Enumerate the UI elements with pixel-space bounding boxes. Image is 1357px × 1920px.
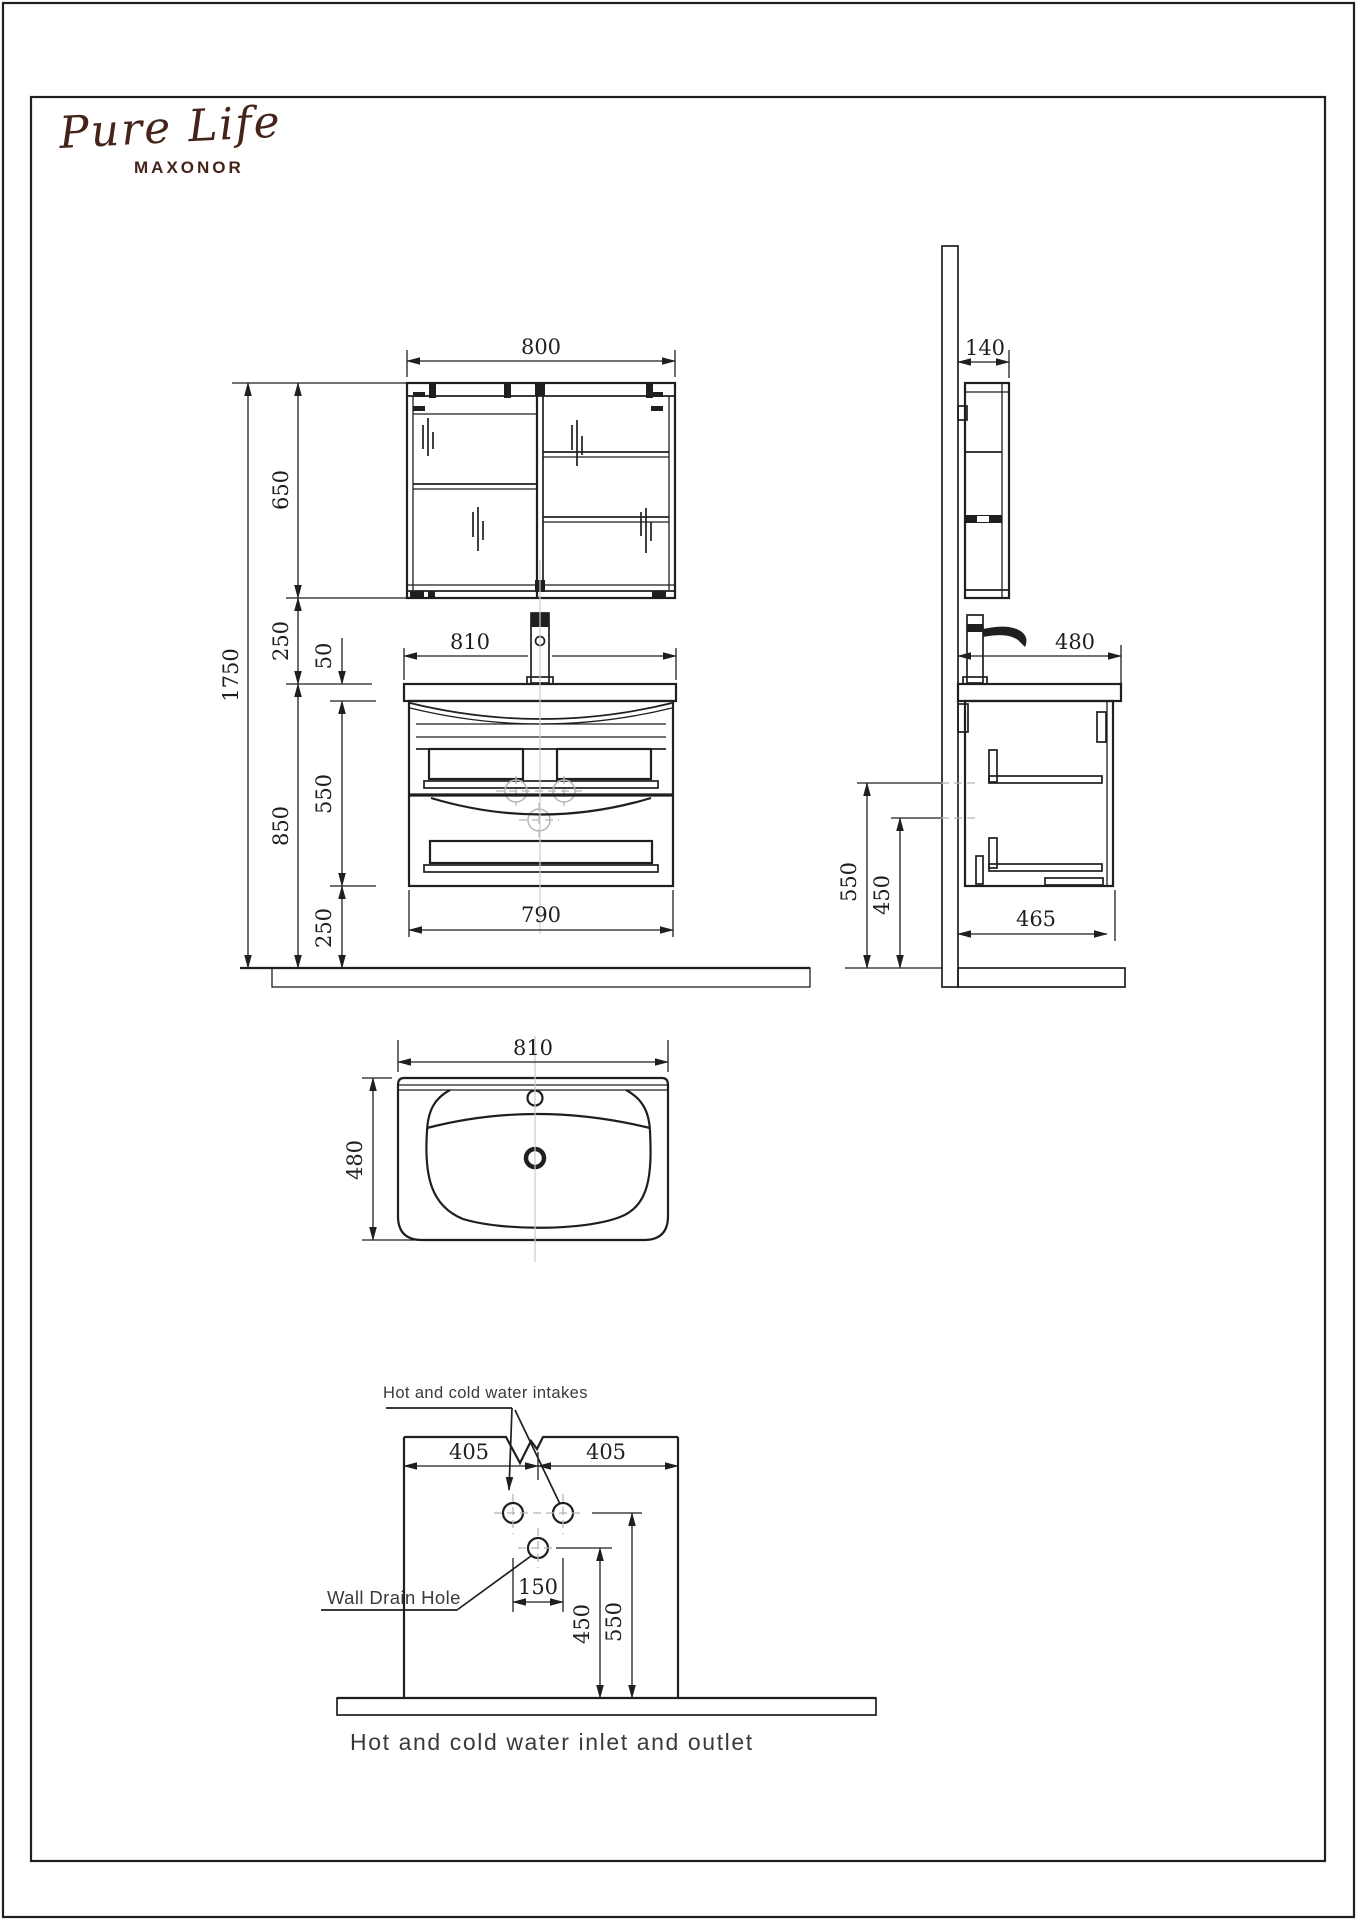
- floor-hatch: [272, 968, 810, 987]
- hanger-clip-icon: [429, 384, 436, 398]
- dim-mirror-depth: 140: [965, 336, 1005, 360]
- dim-upper-ref-height: 550: [837, 862, 861, 902]
- dim-intake-spacing: 150: [518, 1575, 558, 1599]
- floor-inlet: [337, 1698, 876, 1715]
- dim-cabinet-width: 790: [521, 903, 561, 927]
- mirror-cabinet-side: [958, 383, 1009, 598]
- vanity-front: [404, 560, 676, 934]
- plan-dimensions: 810 480: [343, 1036, 668, 1240]
- dim-basin-depth: 480: [343, 1140, 367, 1180]
- floor-hatch: [337, 1698, 876, 1715]
- dim-floor-clearance: 250: [312, 908, 336, 948]
- drain-label: Wall Drain Hole: [327, 1587, 461, 1608]
- dim-left-offset: 405: [449, 1440, 489, 1464]
- hanger-clip-icon: [504, 384, 511, 398]
- dim-counter-depth: 480: [1055, 630, 1095, 654]
- dim-drain-height: 450: [570, 1604, 594, 1644]
- shelf-board: [424, 781, 658, 788]
- basin-top: [398, 1036, 668, 1262]
- dim-cabinet-height: 550: [312, 774, 336, 814]
- front-dimensions: 800 1750 650 250 850 50 550 250: [219, 335, 676, 968]
- inlet-diagram: Hot and cold water intakes 405 405 550: [321, 1384, 876, 1755]
- dim-mirror-to-counter-gap: 250: [269, 621, 293, 661]
- dim-lower-ref-height: 450: [870, 875, 894, 915]
- dim-mirror-height: 650: [269, 470, 293, 510]
- bowl-waterline: [427, 1114, 650, 1128]
- open-shelf-left: [429, 749, 523, 779]
- vanity-side: [958, 684, 1121, 886]
- bottom-drawer: [430, 841, 652, 863]
- counter-side: [958, 684, 1121, 701]
- floor-front: [240, 968, 810, 987]
- spout-icon: [983, 627, 1026, 647]
- front-view: 800 1750 650 250 850 50 550 250: [219, 335, 810, 987]
- side-view: 140 480 465 550 450: [837, 246, 1125, 987]
- technical-drawing: Pure Life MAXONOR: [0, 0, 1357, 1920]
- wall-top-edge: [404, 1437, 678, 1463]
- dim-intake-height: 550: [602, 1602, 626, 1642]
- side-dimensions: 140 480 465 550 450: [837, 336, 1121, 968]
- plan-view: 810 480: [343, 1036, 668, 1262]
- dim-cabinet-depth: 465: [1016, 907, 1056, 931]
- dim-counter-thickness: 50: [312, 643, 336, 670]
- dim-overall-height: 1750: [219, 648, 243, 701]
- faucet-side: [963, 615, 1026, 684]
- drawer-front-curve: [431, 798, 651, 815]
- wall-section: [942, 246, 958, 987]
- dim-mirror-width: 800: [521, 335, 561, 359]
- dim-right-offset: 405: [586, 1440, 626, 1464]
- drawer-side-bracket: [989, 750, 997, 782]
- drawing-page: Pure Life MAXONOR: [0, 0, 1357, 1920]
- dim-cabinet-wall-zone: 850: [269, 806, 293, 846]
- dim-counter-width: 810: [450, 630, 490, 654]
- brand-logo: Pure Life MAXONOR: [57, 96, 283, 177]
- inlet-caption: Hot and cold water inlet and outlet: [350, 1729, 754, 1755]
- intakes-label: Hot and cold water intakes: [383, 1384, 588, 1402]
- floor-hatch: [958, 968, 1125, 987]
- floor-side: [845, 968, 1125, 987]
- open-shelf-right: [557, 749, 651, 779]
- brand-script-logo: Pure Life: [57, 96, 283, 159]
- bowl-outline: [426, 1090, 650, 1228]
- mirror-cabinet-front: [407, 383, 675, 598]
- brand-name: MAXONOR: [134, 158, 244, 177]
- dim-basin-width: 810: [513, 1036, 553, 1060]
